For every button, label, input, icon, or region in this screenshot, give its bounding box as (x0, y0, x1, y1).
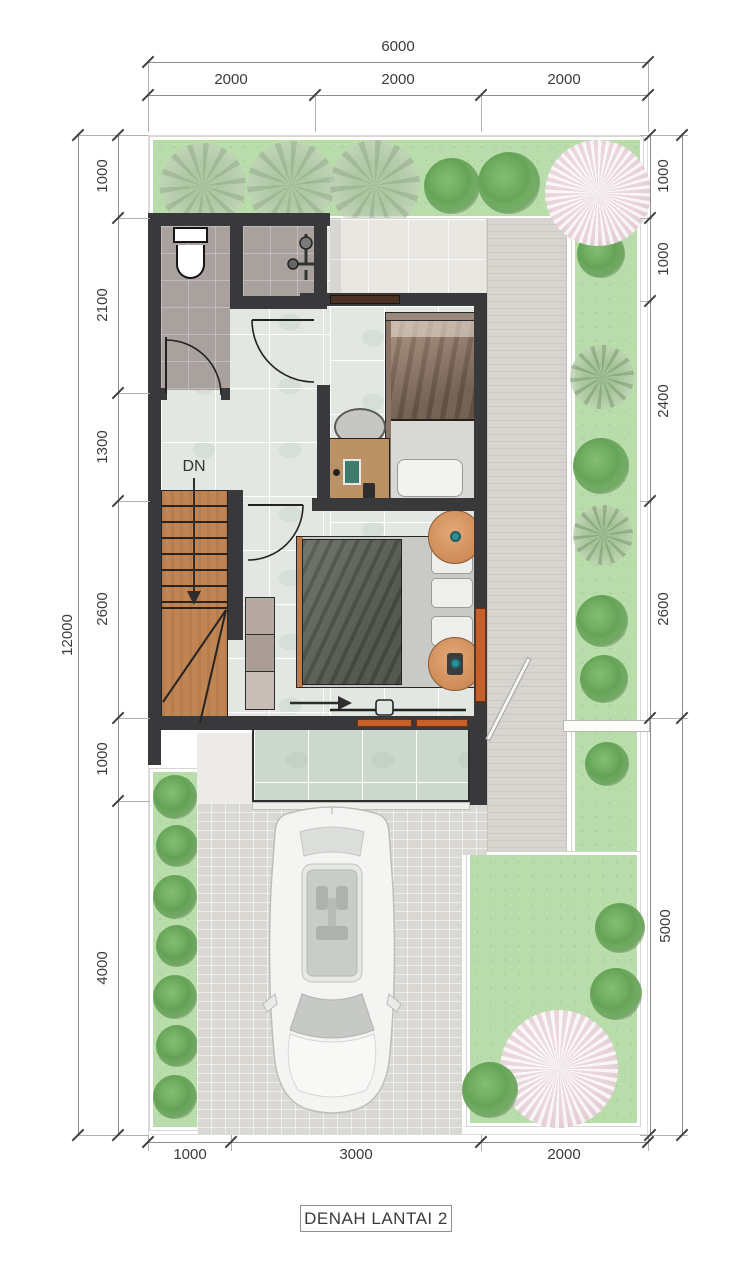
extension-line (78, 135, 148, 136)
nightstand-lamp-icon (450, 658, 461, 669)
dim-top-seg: 2000 (348, 71, 448, 88)
stair-tread (162, 507, 227, 523)
dim-right-seg: 2400 (655, 351, 673, 451)
fence-band (563, 720, 650, 732)
wall-bedroom2-top (312, 498, 480, 511)
dim-left-seg: 2100 (94, 255, 112, 355)
shower-head-icon (282, 232, 318, 286)
extension-line (648, 62, 649, 132)
phone (363, 483, 375, 499)
shrub-icon (153, 1075, 197, 1119)
walkway-light (197, 733, 252, 805)
dim-bottom-seg: 3000 (306, 1146, 406, 1163)
dim-left-seg: 1300 (94, 397, 112, 497)
stair-tread (162, 491, 227, 507)
shrub-icon (585, 742, 629, 786)
dim-left-seg: 2600 (94, 559, 112, 659)
wall-left (148, 213, 161, 765)
balcony-floor (252, 726, 470, 802)
dim-left-seg: 4000 (94, 918, 112, 1018)
shrub-icon (156, 825, 198, 867)
dim-top-total: 6000 (348, 38, 448, 55)
toilet-bowl (176, 245, 205, 279)
desk (328, 438, 390, 502)
stair-tread (162, 587, 227, 603)
dim-line-left-outer (78, 135, 79, 1135)
shrub-icon (462, 1062, 518, 1118)
deck-walkway (487, 218, 567, 853)
pillow (397, 459, 463, 497)
flowering-tree-icon (545, 140, 651, 246)
window-bottom-wall (416, 719, 468, 727)
shrub-icon (153, 975, 197, 1019)
dim-line-right-outer (682, 135, 683, 1135)
book (343, 459, 361, 485)
dim-bottom-seg: 1000 (140, 1146, 240, 1163)
wall-stair-side (228, 490, 243, 640)
terrace-tile (327, 218, 487, 298)
wall-top (148, 213, 330, 226)
wall-bedroom1-left (317, 385, 330, 511)
wardrobe (245, 597, 275, 710)
palm-plant-icon (330, 140, 420, 230)
shrub-icon (478, 152, 540, 214)
shrub-icon (573, 438, 629, 494)
desk-knob (333, 469, 340, 476)
flowering-tree-icon (500, 1010, 618, 1128)
wall-bathroom-divider (230, 226, 243, 309)
dim-line-bottom (148, 1142, 648, 1143)
dim-line-left-inner (118, 135, 119, 1135)
window-right-wall (475, 608, 486, 702)
dim-line-top-total (148, 62, 648, 63)
stair-tread (162, 571, 227, 587)
extension-line (118, 393, 150, 394)
window-bottom-wall (357, 719, 412, 727)
stair-tread (162, 539, 227, 555)
extension-line (481, 95, 482, 132)
car-top-view (262, 798, 402, 1120)
shrub-icon (153, 875, 197, 919)
dim-right-seg: 2600 (655, 559, 673, 659)
extension-line (118, 718, 150, 719)
wall-bath-door-stub (221, 388, 230, 400)
stair-tread (162, 523, 227, 539)
pillow (431, 578, 473, 608)
extension-line (315, 95, 316, 132)
driveway-paving (462, 803, 487, 855)
extension-line (118, 801, 150, 802)
shrub-icon (156, 925, 198, 967)
toilet-tank (173, 227, 208, 243)
dim-left-total: 12000 (59, 585, 77, 685)
floor-plan-sheet: DN (0, 0, 752, 1280)
shrub-icon (424, 158, 480, 214)
dim-top-seg: 2000 (514, 71, 614, 88)
shrub-icon (590, 968, 642, 1020)
dim-line-right-inner (650, 135, 651, 1135)
wall-balcony-right (470, 716, 487, 805)
shrub-icon (580, 655, 628, 703)
palm-plant-icon (573, 505, 633, 565)
bed-fold (386, 321, 477, 337)
wardrobe-section (246, 672, 274, 709)
nightstand-lamp-icon (450, 531, 461, 542)
wall-bath-door-stub (161, 388, 167, 400)
wardrobe-section (246, 635, 274, 672)
shrub-icon (576, 595, 628, 647)
dim-right-seg: 1000 (655, 209, 673, 309)
dim-left-seg: 1000 (94, 126, 112, 226)
shrub-icon (156, 1025, 198, 1067)
dim-line-top-segments (148, 95, 648, 96)
shrub-icon (595, 903, 645, 953)
dim-right-seg: 5000 (657, 876, 675, 976)
bed-blanket (302, 539, 402, 685)
drawing-title: DENAH LANTAI 2 (300, 1205, 452, 1232)
window-top-bedroom (330, 295, 400, 304)
shrub-icon (153, 775, 197, 819)
dim-left-seg: 1000 (94, 709, 112, 809)
staircase (161, 490, 228, 725)
wardrobe-section (246, 598, 274, 635)
dim-bottom-seg: 2000 (514, 1146, 614, 1163)
dim-top-seg: 2000 (181, 71, 281, 88)
extension-line (78, 1135, 148, 1136)
stair-tread (162, 555, 227, 571)
bed-single (385, 312, 478, 505)
bed-headboard (386, 313, 477, 321)
extension-line (118, 501, 150, 502)
extension-line (118, 218, 150, 219)
extension-line (148, 62, 149, 132)
palm-plant-icon (570, 345, 634, 409)
